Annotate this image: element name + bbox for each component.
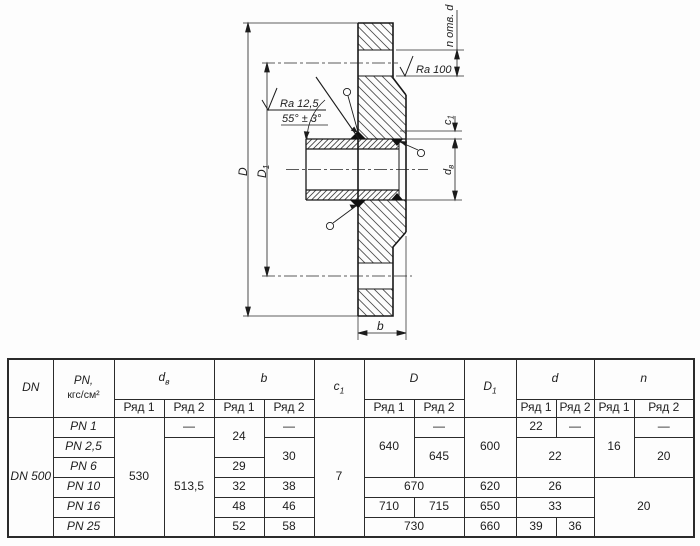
cell-b-row2-30: 30 [264, 437, 314, 477]
cell-d-pn16: 33 [516, 497, 594, 517]
cell-b-row2-pn1: — [264, 417, 314, 437]
label-bore-diameter: dв [442, 165, 456, 175]
cell-D-row2-pn1: — [414, 417, 464, 437]
label-holes-note: n отв. d [444, 4, 456, 47]
header-b-row2: Ряд 2 [264, 399, 314, 417]
cell-dn-value: DN 500 [8, 417, 53, 537]
cell-pn-2.5: PN 2,5 [53, 437, 114, 457]
cell-d-row1-pn25: 39 [516, 517, 556, 537]
cell-pn-10: PN 10 [53, 477, 114, 497]
header-D1: D1 [464, 359, 516, 417]
cell-D-row2-mid: 645 [414, 437, 464, 477]
header-n-row1: Ряд 1 [594, 399, 634, 417]
cell-b-row1-pn1: 24 [214, 417, 264, 457]
cell-D-pn25: 730 [364, 517, 464, 537]
cell-D1-top: 600 [464, 417, 516, 477]
header-pn: PN, кгс/см² [53, 359, 114, 417]
header-dv-row1: Ряд 1 [114, 399, 164, 417]
cell-b-row2-pn10: 38 [264, 477, 314, 497]
cell-dv-row1: 530 [114, 417, 164, 537]
dimension-lines [246, 10, 460, 335]
label-ledge-height: c1 [442, 115, 456, 125]
flange-section-drawing: D D1 b c1 dв n отв. d Ra 100 Ra 12,5 55°… [0, 0, 700, 356]
cell-b-row1-pn16: 48 [214, 497, 264, 517]
cell-D-row1-pn16: 710 [364, 497, 414, 517]
cell-pn-25: PN 25 [53, 517, 114, 537]
header-dn: DN [8, 359, 53, 417]
cell-d-row2-pn1: — [556, 417, 594, 437]
cell-b-row1-pn10: 32 [214, 477, 264, 497]
cell-D-row2-pn16: 715 [414, 497, 464, 517]
cell-b-row1-pn6: 29 [214, 457, 264, 477]
cell-D1-pn25: 660 [464, 517, 516, 537]
cell-d-row1-pn1: 22 [516, 417, 556, 437]
cell-d-row2-pn25: 36 [556, 517, 594, 537]
header-dv-row2: Ряд 2 [164, 399, 214, 417]
header-d-row2: Ряд 2 [556, 399, 594, 417]
cell-n-row2-pn1: — [634, 417, 694, 437]
header-D: D [364, 359, 464, 399]
cell-b-row2-pn16: 46 [264, 497, 314, 517]
label-bevel-angle: 55° ± 3° [282, 113, 322, 125]
cell-pn-1: PN 1 [53, 417, 114, 437]
cell-n-row1-top: 16 [594, 417, 634, 477]
label-outer-diameter: D [236, 167, 250, 176]
label-roughness-face: Ra 100 [416, 64, 452, 76]
cell-d-mid: 22 [516, 437, 594, 477]
header-n-row2: Ряд 2 [634, 399, 694, 417]
cell-b-row1-pn25: 52 [214, 517, 264, 537]
header-c1: c1 [314, 359, 364, 417]
cell-D-row1-top: 640 [364, 417, 414, 477]
header-n: n [594, 359, 694, 399]
label-thickness: b [377, 319, 384, 333]
cell-b-row2-pn25: 58 [264, 517, 314, 537]
roughness-check-icon [262, 88, 277, 110]
header-d-row1: Ряд 1 [516, 399, 556, 417]
header-D-row2: Ряд 2 [414, 399, 464, 417]
cell-dv-row2-pn1: — [164, 417, 214, 437]
cell-D-pn10: 670 [364, 477, 464, 497]
header-dv: dв [114, 359, 214, 399]
cell-d-pn10: 26 [516, 477, 594, 497]
header-b-row1: Ряд 1 [214, 399, 264, 417]
cell-pn-16: PN 16 [53, 497, 114, 517]
label-bolt-circle: D1 [255, 164, 271, 178]
roughness-check-icon [400, 56, 413, 76]
cell-D1-pn10: 620 [464, 477, 516, 497]
flange-dimensions-table: DN PN, кгс/см² dв b c1 D D1 d n Ряд 1 Ря… [7, 358, 695, 538]
cell-n-row2-mid: 20 [634, 437, 694, 477]
label-roughness-bevel: Ra 12,5 [280, 98, 319, 110]
cell-D1-pn16: 650 [464, 497, 516, 517]
cell-pn-6: PN 6 [53, 457, 114, 477]
cell-c1: 7 [314, 417, 364, 537]
header-d: d [516, 359, 594, 399]
cell-dv-row2-rest: 513,5 [164, 437, 214, 537]
header-D-row1: Ряд 1 [364, 399, 414, 417]
flange-spec-sheet: D D1 b c1 dв n отв. d Ra 100 Ra 12,5 55°… [0, 0, 700, 546]
header-b: b [214, 359, 314, 399]
cell-n-bottom: 20 [594, 477, 694, 537]
